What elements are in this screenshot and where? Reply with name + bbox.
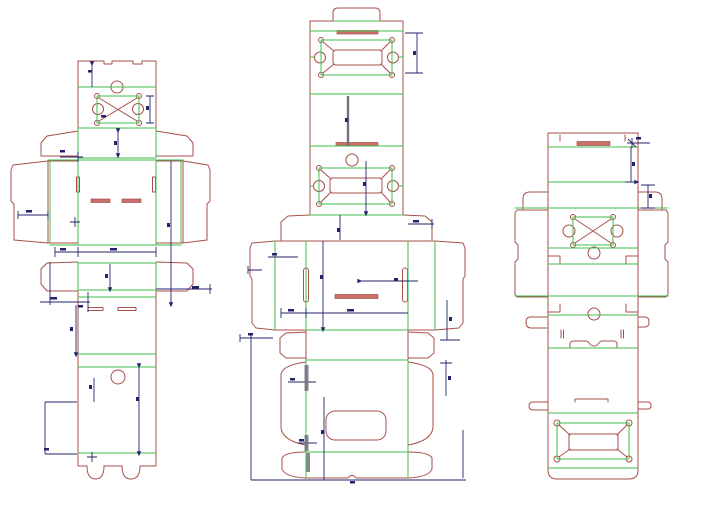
cut-lines-left — [11, 61, 210, 479]
crease-lines-right — [515, 147, 668, 468]
dimension-labels-middle — [248, 51, 452, 484]
dieline-canvas[interactable] — [0, 0, 720, 514]
dimension-lines-middle — [240, 33, 466, 480]
cut-lines-middle — [250, 8, 465, 478]
handle-cutout-left-top — [93, 94, 144, 126]
crease-lines-middle — [275, 21, 435, 478]
handle-cutout-right-top — [563, 215, 623, 248]
dieline-right[interactable] — [515, 133, 668, 479]
dieline-middle[interactable] — [240, 8, 466, 484]
handle-cutout-right-bottom — [554, 420, 632, 462]
window-cutout — [326, 411, 386, 440]
slot-cuts-right — [577, 142, 610, 146]
cad-drawing-area[interactable] — [0, 0, 720, 514]
handle-cutout-middle-top — [315, 38, 399, 78]
slot-cuts-left — [91, 199, 141, 203]
dieline-left[interactable] — [11, 61, 212, 479]
dimension-extension-bars-middle — [305, 365, 311, 472]
handle-cutout-middle-second — [314, 166, 399, 207]
dimension-labels-left — [26, 70, 199, 451]
